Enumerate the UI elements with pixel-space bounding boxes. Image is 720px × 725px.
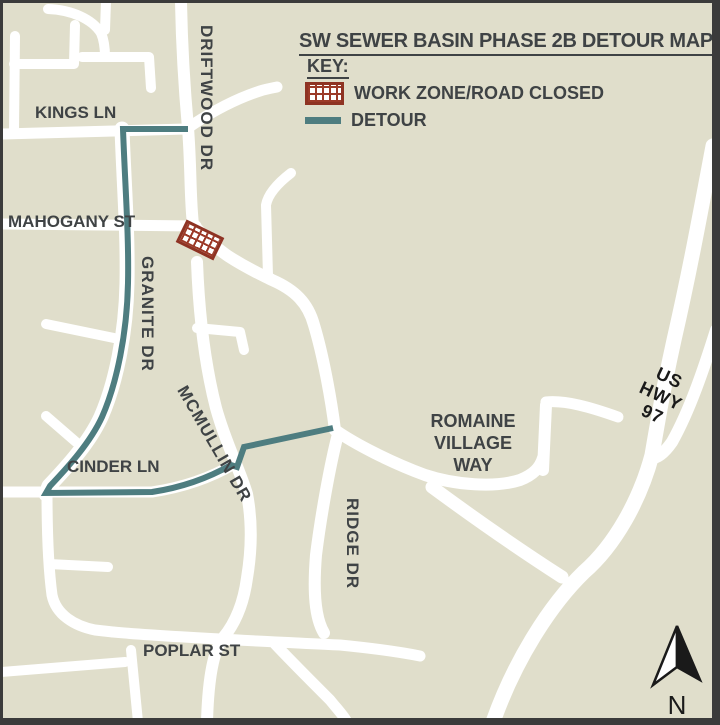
label-cinder-ln: CINDER LN <box>67 458 160 476</box>
label-romaine-line1: ROMAINE <box>431 410 516 432</box>
road <box>46 324 114 338</box>
detour-label: DETOUR <box>351 110 427 131</box>
label-romaine-line2: VILLAGE <box>431 432 516 454</box>
road <box>82 57 151 88</box>
key-heading: KEY: <box>307 56 349 79</box>
work-zone-swatch <box>305 82 344 105</box>
road <box>14 36 15 131</box>
road <box>46 416 76 442</box>
road <box>432 487 562 577</box>
label-romaine-village-way: ROMAINE VILLAGE WAY <box>431 410 516 476</box>
label-poplar-st: POPLAR ST <box>143 642 240 660</box>
map-title: SW SEWER BASIN PHASE 2B DETOUR MAP <box>299 30 712 56</box>
road <box>266 173 291 276</box>
map-frame: SW SEWER BASIN PHASE 2B DETOUR MAP KEY: … <box>0 0 720 725</box>
road <box>275 644 347 718</box>
work-zone-label: WORK ZONE/ROAD CLOSED <box>354 83 604 104</box>
detour-map: SW SEWER BASIN PHASE 2B DETOUR MAP KEY: … <box>3 3 712 718</box>
road-ridge-dr <box>315 434 338 633</box>
road <box>546 402 618 417</box>
legend-work-zone: WORK ZONE/ROAD CLOSED <box>305 82 604 105</box>
label-romaine-line3: WAY <box>431 454 516 476</box>
road <box>3 650 138 718</box>
label-granite-dr: GRANITE DR <box>138 256 156 372</box>
north-arrow: N <box>644 618 712 710</box>
label-kings-ln: KINGS LN <box>35 104 116 122</box>
label-ridge-dr: RIDGE DR <box>343 498 361 589</box>
legend-detour: DETOUR <box>305 110 427 131</box>
north-label: N <box>668 690 687 718</box>
label-driftwood-dr: DRIFTWOOD DR <box>197 25 215 171</box>
label-mahogany-st: MAHOGANY ST <box>8 213 135 231</box>
road <box>14 25 75 64</box>
road <box>49 564 108 567</box>
road <box>543 405 546 470</box>
detour-swatch <box>305 117 341 124</box>
